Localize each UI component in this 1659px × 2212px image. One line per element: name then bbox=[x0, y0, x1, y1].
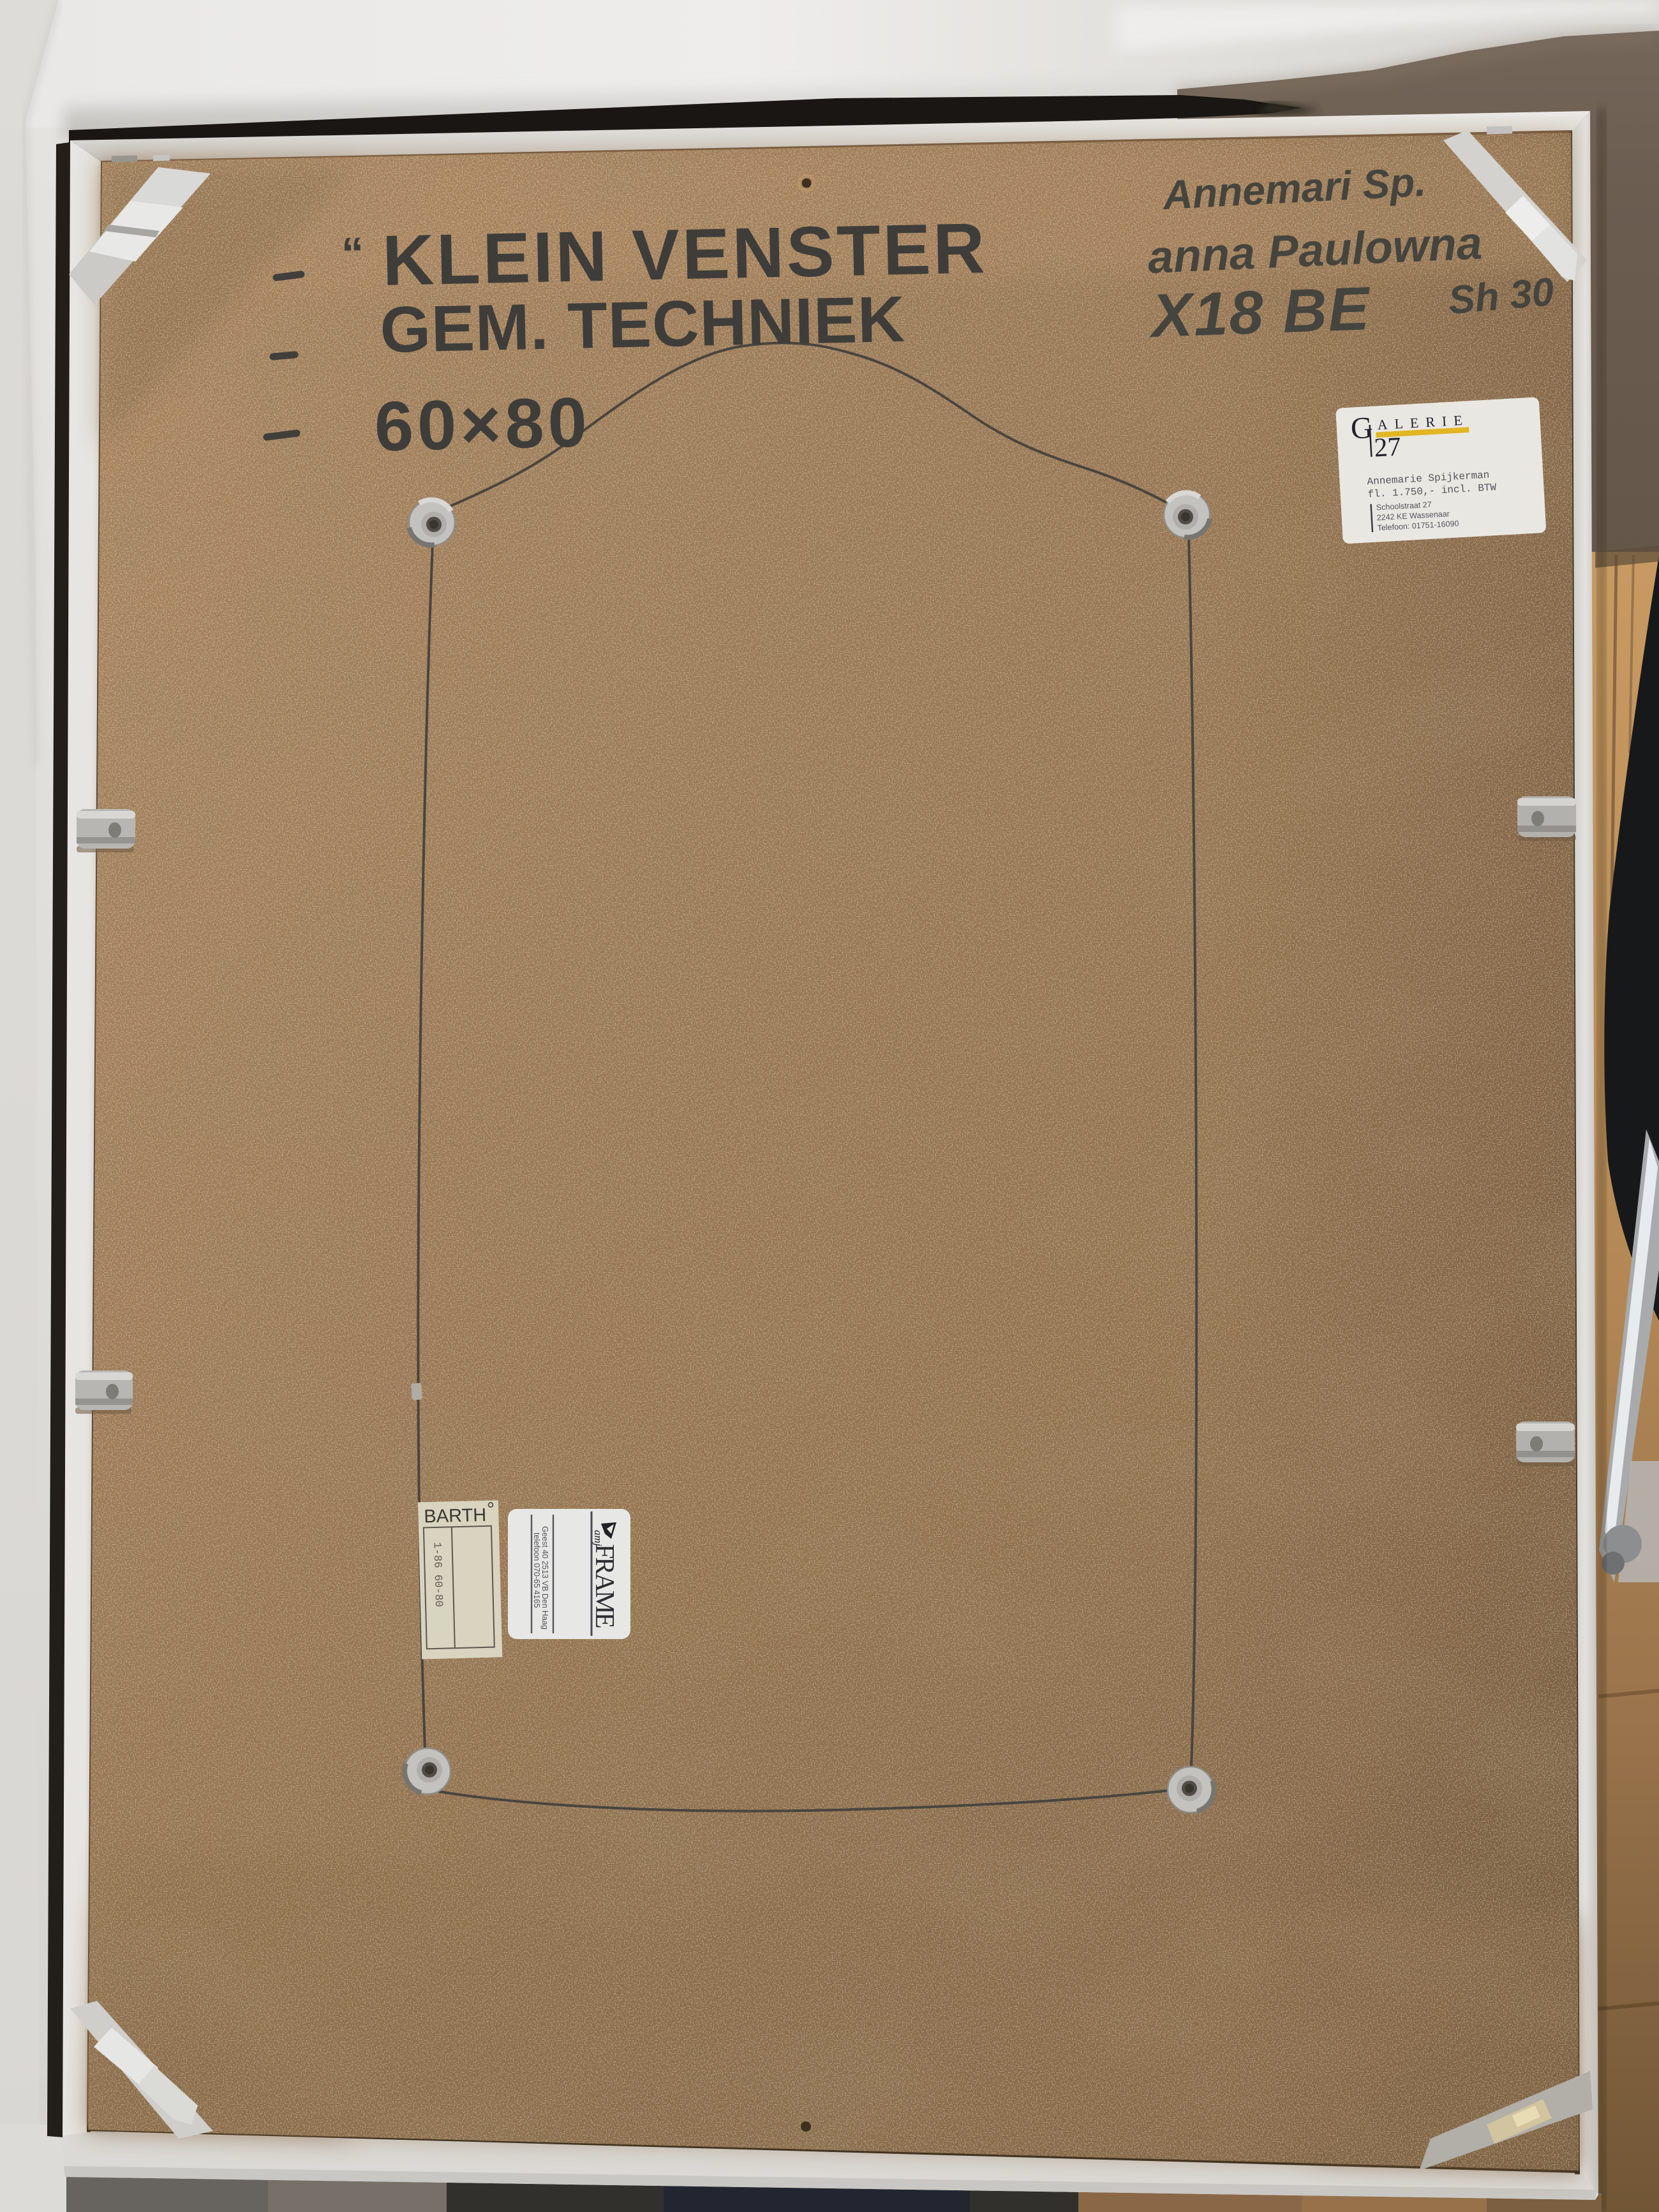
svg-text:telefoon 070-65 4165: telefoon 070-65 4165 bbox=[532, 1533, 541, 1608]
svg-text:60×80: 60×80 bbox=[374, 383, 591, 466]
svg-text:Sh 30: Sh 30 bbox=[1447, 270, 1556, 323]
svg-text:amj: amj bbox=[592, 1530, 604, 1547]
svg-text:BARTH: BARTH bbox=[424, 1505, 487, 1527]
svg-text:“: “ bbox=[341, 228, 364, 279]
svg-text:1-86 60-80: 1-86 60-80 bbox=[430, 1542, 444, 1607]
svg-text:GEM. TECHNIEK: GEM. TECHNIEK bbox=[379, 283, 906, 366]
svg-text:Geest 40 2513 VB Den Haag: Geest 40 2513 VB Den Haag bbox=[540, 1526, 549, 1629]
svg-text:X18 BE: X18 BE bbox=[1147, 274, 1372, 350]
svg-text:FRAME: FRAME bbox=[590, 1544, 619, 1628]
